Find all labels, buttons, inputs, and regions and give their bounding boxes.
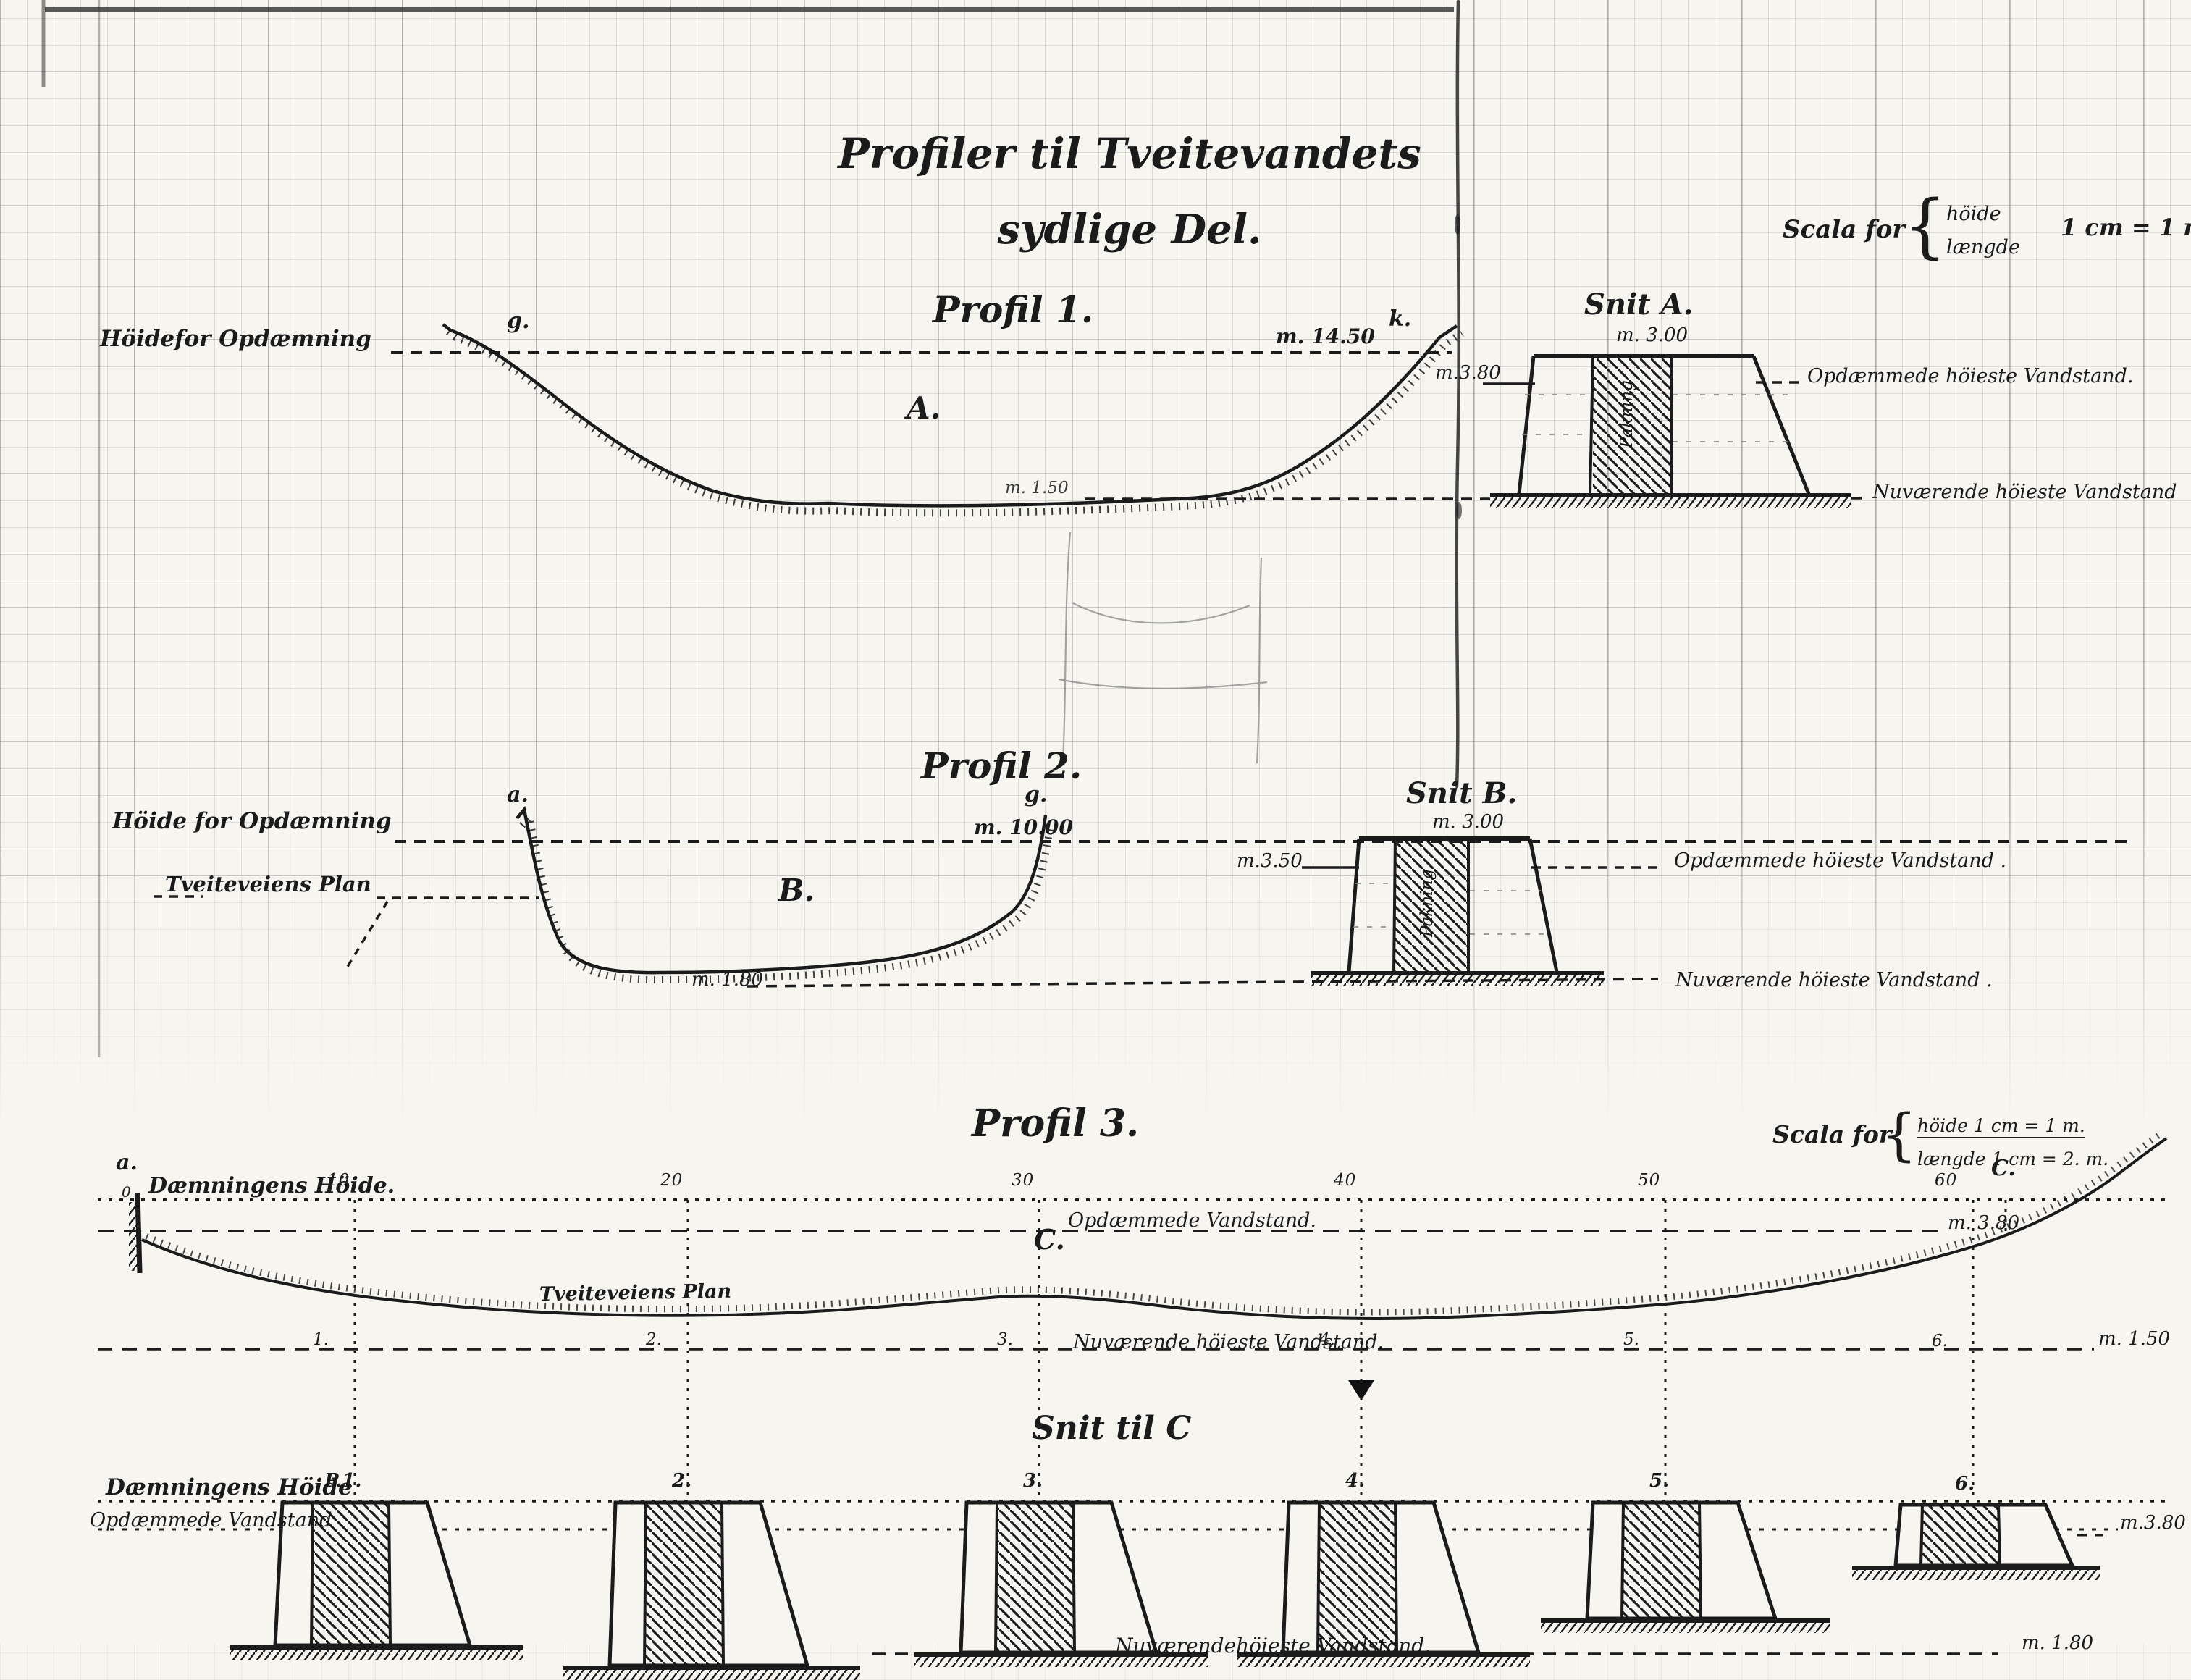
snit-c-bottom-value: m. 1.80 [2022, 1634, 2093, 1653]
snit-c-label-4: 4. [1345, 1471, 1365, 1491]
snit-c-top-line-label: Dæmningens Höide [106, 1476, 353, 1500]
snit-a-cross-section [1490, 356, 1851, 508]
profil3-line-station-1: 1. [313, 1331, 329, 1348]
profil3-scale-brace: { [1881, 1106, 1917, 1166]
profil3-area-label: C. [1034, 1225, 1065, 1254]
scale-main-equation: 1 cm = 1 m. [2061, 216, 2191, 240]
profil3-station-20: 20 [660, 1172, 683, 1189]
dam-section-5 [1541, 1503, 1830, 1633]
profil3-line-station-6: 6. [1932, 1332, 1948, 1350]
profil3-station-50: 50 [1638, 1172, 1660, 1189]
sheet-title-line2: sydlige Del. [768, 209, 1492, 251]
profil3-station-30: 30 [1012, 1172, 1034, 1189]
profil2-road-label: Tveiteveiens Plan [165, 873, 371, 895]
snit-a-core-label: Pakning [1618, 380, 1636, 448]
snit-b-width: m. 3.00 [1432, 812, 1504, 832]
pencil-sketch [1059, 532, 1267, 763]
snit-c-label-p1: P.1. [324, 1471, 361, 1491]
profil2-right-lower-label: Nuværende höieste Vandstand . [1675, 970, 1993, 991]
profil3-scale-label: Scala for [1772, 1122, 1891, 1148]
sheet-title-line1: Profiler til Tveitevandets [768, 132, 1492, 176]
profil3-station-10: 10 [327, 1172, 350, 1189]
snit-c-label-5: 5. [1649, 1471, 1669, 1491]
profil3-line-station-4: 4. [1319, 1331, 1335, 1348]
profil3-title: Profil 3. [972, 1104, 1139, 1144]
scale-main-length-word: længde [1946, 238, 2020, 258]
snit-c-water-value: m.3.80 [2120, 1513, 2186, 1533]
profil1-left-label: Höidefor Opdæmning [100, 327, 371, 351]
profil1-title: Profil 1. [933, 291, 1093, 329]
dam-section-6 [1852, 1505, 2103, 1580]
profil1-right-upper-label: Opdæmmede höieste Vandstand. [1807, 366, 2133, 387]
profil1-right-lower-label: Nuværende höieste Vandstand [1872, 482, 2177, 503]
profil3-current-water-value: m. 1.50 [2098, 1330, 2170, 1349]
snit-b-title: Snit B. [1406, 778, 1517, 809]
profil1-point-k: k. [1389, 308, 1411, 331]
profil2-bottom-level: m. 1.80 [691, 970, 763, 990]
profil3-point-c: C. [1991, 1157, 2016, 1180]
profil3-station-60: 60 [1935, 1172, 1957, 1189]
profil2-point-a: a. [507, 784, 529, 807]
profil2-point-g: g. [1025, 784, 1047, 807]
snit-c-bottom-label: Nuværendehöieste Vandstand. [1115, 1635, 1431, 1656]
profil1-point-g: g. [507, 310, 529, 333]
profil3-line-station-2: 2. [646, 1331, 662, 1348]
profil1-bottom-level: m. 1.50 [1005, 479, 1069, 497]
profil3-point-a: a. [116, 1151, 138, 1175]
snit-c-water-label: Opdæmmede Vandstand [90, 1511, 332, 1531]
profil2-linework [154, 810, 2129, 986]
profil3-current-water-label: Nuværende höieste Vandstand. [1073, 1332, 1384, 1353]
profil2-title: Profil 2. [921, 747, 1082, 786]
profil3-top-line-label: Dæmningens Höide. [148, 1175, 395, 1198]
profil2-crest-length: m. 10.00 [974, 817, 1073, 838]
snit-c-label-3: 3. [1023, 1471, 1043, 1491]
scanned-drawing-sheet: Profiler til Tveitevandets sydlige Del. … [0, 0, 2191, 1680]
profil3-line-station-5: 5. [1623, 1331, 1639, 1348]
snit-a-width: m. 3.00 [1616, 326, 1688, 345]
scale-main-brace: { [1903, 190, 1947, 263]
snit-c-title: Snit til C [1032, 1412, 1191, 1445]
profil2-dam-water-level: m.3.50 [1237, 852, 1303, 871]
profil3-road-label: Tveiteveiens Plan [539, 1282, 732, 1306]
snit-c-label-2: 2. [672, 1471, 691, 1491]
profil1-dam-water-level: m.3.80 [1435, 364, 1501, 383]
survey-marker-triangle [1348, 1380, 1374, 1400]
scale-main-height-word: höide [1946, 204, 2001, 224]
snit-c-label-6: 6. [1955, 1474, 1975, 1494]
profil3-scale-height: höide 1 cm = 1 m. [1917, 1117, 2085, 1138]
profil2-area-label: B. [778, 875, 815, 907]
profil3-line-station-3: 3. [997, 1331, 1013, 1348]
snit-b-cross-section [1311, 839, 1604, 986]
profil1-crest-length: m. 14.50 [1276, 326, 1375, 347]
profil3-station-40: 40 [1334, 1172, 1356, 1189]
profil3-zero: 0 [122, 1185, 131, 1200]
profil2-right-upper-label: Opdæmmede höieste Vandstand . [1674, 851, 2006, 871]
profil3-dam-water-value: m. 3.80 [1948, 1214, 2019, 1233]
profil1-area-label: A. [907, 392, 941, 424]
snit-a-title: Snit A. [1584, 290, 1694, 320]
scale-main-label: Scala for [1783, 217, 1905, 243]
profil3-dam-water-label: Opdæmmede Vandstand. [1068, 1211, 1316, 1231]
profil2-left-label: Höide for Opdæmning [112, 810, 392, 833]
snit-b-core-label: Pakning [1418, 869, 1436, 937]
